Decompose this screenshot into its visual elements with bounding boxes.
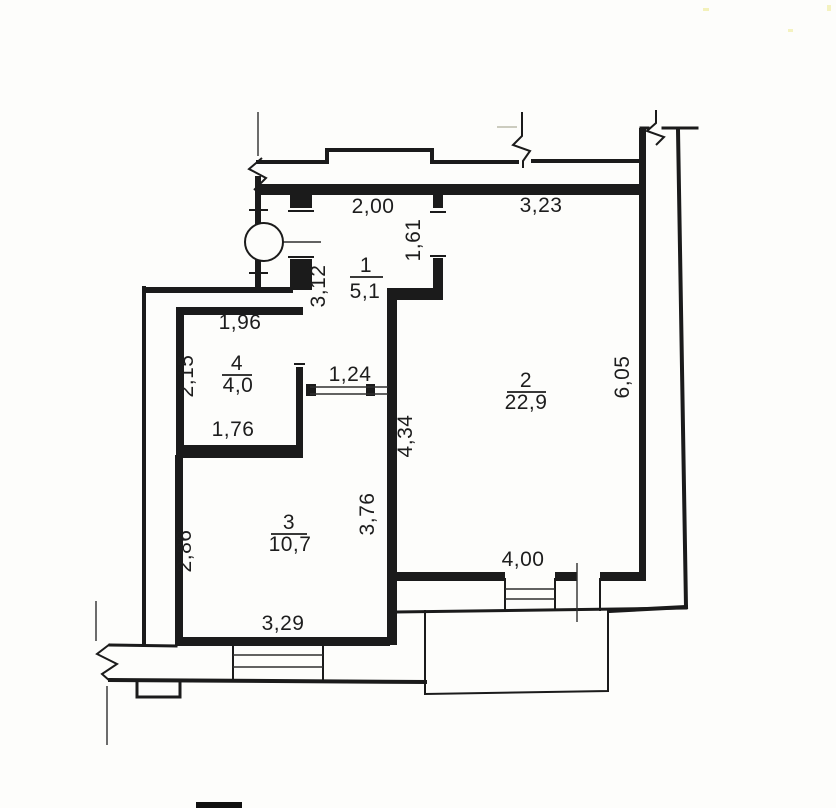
dim-hallway-width: 1,24	[329, 363, 372, 386]
wall-room4-bottom	[176, 445, 303, 458]
dim-room4-left: 2,15	[175, 355, 198, 398]
break-symbol-top-middle	[513, 112, 530, 168]
room3-number: 3	[283, 511, 295, 534]
room3-window-sill-lines	[233, 655, 323, 667]
wall-top-inner	[256, 184, 646, 195]
room2-area: 22,9	[505, 391, 548, 414]
dim-room2-bottom: 4,00	[502, 548, 545, 571]
balcony-outline	[425, 611, 608, 694]
dim-room2-top: 3,23	[520, 194, 563, 217]
room4-number: 4	[231, 352, 243, 375]
floor-plan-page: 1 5,1 2 22,9 3 10,7 4 4,0 2,00 3,12 1,61…	[0, 0, 836, 808]
riser-circle-symbol	[245, 223, 283, 261]
wall-room2-bottom-c	[600, 572, 646, 581]
break-symbol-bottom-left	[97, 644, 117, 681]
scan-smudge-bottom	[196, 802, 242, 808]
dim-room3-left: 2,86	[173, 530, 196, 573]
floor-plan-canvas: 1 5,1 2 22,9 3 10,7 4 4,0 2,00 3,12 1,61…	[0, 0, 836, 808]
dim-room3-right: 3,76	[356, 493, 379, 536]
room3-doorway-lines	[310, 387, 388, 394]
wall-top-outer-left	[258, 150, 517, 162]
room3-window-jambs	[233, 646, 323, 680]
wall-bottom-outer	[110, 680, 425, 682]
room1-room2-door-ticks	[430, 212, 446, 256]
wall-bottom-left-top-face	[110, 645, 176, 646]
wall-room2-bottom-b	[555, 572, 577, 581]
dim-room3-bottom: 3,29	[262, 612, 305, 635]
room1-number: 1	[360, 254, 372, 277]
scan-speckle-1	[703, 8, 709, 11]
wall-corridor-room2	[387, 295, 397, 645]
wall-room3-bottom-inner	[175, 637, 390, 646]
scan-speckle-3	[827, 5, 831, 11]
room2-window-sill-lines	[505, 589, 555, 599]
wall-entry-niche-bottom	[143, 287, 293, 293]
wall-room2-right-inner	[639, 128, 646, 578]
extension-lines	[96, 112, 577, 745]
wall-right-outer	[678, 130, 686, 607]
wall-bottom-pilaster	[137, 681, 180, 697]
wall-room4-right-lower	[296, 367, 303, 455]
room1-area: 5,1	[350, 280, 381, 303]
dim-room4-top: 1,96	[219, 311, 262, 334]
scan-speckle-2	[788, 29, 793, 32]
dim-room4-bottom: 1,76	[212, 418, 255, 441]
dim-room1-top: 2,00	[352, 195, 395, 218]
room3-area: 10,7	[269, 533, 312, 556]
dim-room1-right: 1,61	[402, 219, 425, 262]
dim-room1-left: 3,12	[307, 265, 330, 308]
inner-walls	[143, 128, 646, 646]
dim-room2-right: 6,05	[611, 356, 634, 399]
wall-room1-left-stub	[290, 195, 312, 208]
wall-room2-bottom-a	[397, 572, 505, 581]
dim-room2-left: 4,34	[394, 415, 417, 458]
wall-room2-bottom-outer	[396, 608, 686, 612]
room2-number: 2	[520, 369, 532, 392]
room-labels: 1 5,1 2 22,9 3 10,7 4 4,0	[222, 254, 547, 556]
room1-left-door-ticks	[288, 211, 314, 257]
room2-window-jambs	[505, 578, 555, 611]
wall-room1-room2-stub	[433, 195, 443, 208]
break-symbol-top-right	[647, 110, 664, 145]
room4-area: 4,0	[223, 374, 254, 397]
dimension-labels: 2,00 3,12 1,61 3,23 4,34 6,05 4,00 1,24 …	[173, 194, 634, 635]
wall-top-outer-right	[533, 131, 641, 161]
wall-room1-room2-lower	[433, 258, 443, 290]
